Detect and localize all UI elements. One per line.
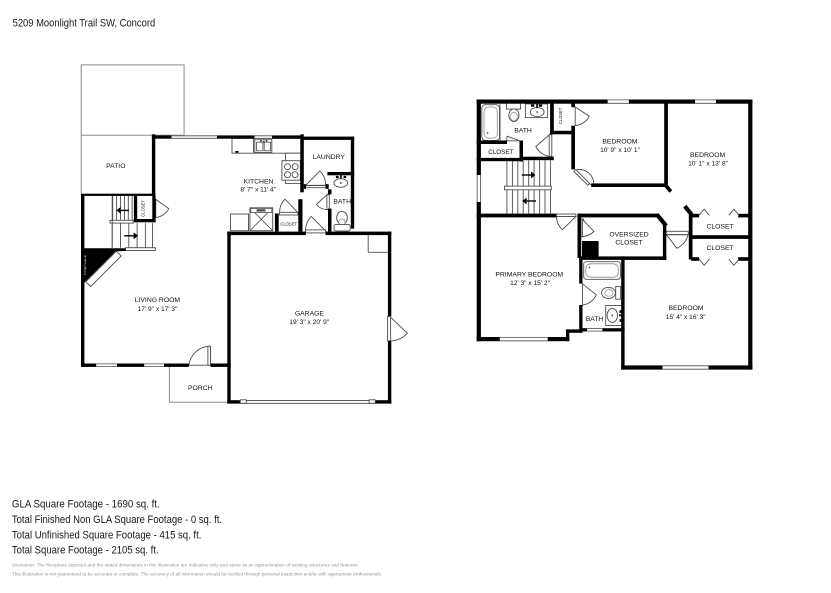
svg-text:17' 9" x 17' 3": 17' 9" x 17' 3" — [138, 306, 178, 313]
svg-text:Disclaimer: The floorplans dep: Disclaimer: The floorplans depicted and … — [12, 562, 359, 567]
svg-text:LIVING ROOM: LIVING ROOM — [135, 297, 181, 304]
svg-text:CLOSET: CLOSET — [488, 149, 513, 156]
svg-text:This illustration is not guara: This illustration is not guaranteed to b… — [12, 572, 382, 577]
svg-text:BEDROOM: BEDROOM — [668, 305, 703, 312]
svg-text:BATH: BATH — [514, 128, 532, 135]
svg-text:CLOSET: CLOSET — [280, 221, 297, 226]
svg-text:Total Unfinished Square Footag: Total Unfinished Square Footage - 415 sq… — [12, 529, 202, 541]
svg-text:BATH: BATH — [586, 316, 604, 323]
svg-text:BEDROOM: BEDROOM — [690, 152, 725, 159]
svg-text:5209 Moonlight Trail SW, Conco: 5209 Moonlight Trail SW, Concord — [13, 17, 156, 29]
svg-text:BATH: BATH — [333, 199, 351, 206]
svg-text:PORCH: PORCH — [188, 385, 213, 392]
svg-text:10' 1" x 13' 8": 10' 1" x 13' 8" — [688, 160, 728, 167]
svg-text:CLOSET: CLOSET — [558, 107, 563, 124]
svg-text:PRIMARY BEDROOM: PRIMARY BEDROOM — [495, 271, 563, 278]
svg-text:CLOSET: CLOSET — [141, 200, 146, 217]
svg-text:19' 3" x 20' 9": 19' 3" x 20' 9" — [289, 319, 329, 326]
svg-text:CLOSET: CLOSET — [615, 240, 642, 247]
svg-text:PATIO: PATIO — [106, 163, 125, 170]
svg-text:15' 4" x 16' 3": 15' 4" x 16' 3" — [666, 314, 706, 321]
svg-text:CLOSET: CLOSET — [706, 224, 733, 231]
svg-text:12' 3" x 15' 2": 12' 3" x 15' 2" — [510, 280, 550, 287]
svg-text:CLOSET: CLOSET — [706, 245, 733, 252]
svg-text:GLA Square Footage - 1690 sq.: GLA Square Footage - 1690 sq. ft. — [12, 499, 160, 511]
svg-text:BEDROOM: BEDROOM — [602, 139, 637, 146]
svg-text:Total Finished Non GLA Square: Total Finished Non GLA Square Footage - … — [12, 514, 222, 526]
svg-text:10' 9" x 10' 1": 10' 9" x 10' 1" — [600, 147, 640, 154]
svg-text:Total Square Footage - 2105 sq: Total Square Footage - 2105 sq. ft. — [12, 544, 159, 556]
svg-text:KITCHEN: KITCHEN — [244, 178, 274, 185]
svg-text:OVERSIZED: OVERSIZED — [609, 232, 648, 239]
svg-text:8' 7" x 11' 4": 8' 7" x 11' 4" — [240, 187, 276, 194]
svg-text:GARAGE: GARAGE — [295, 310, 325, 317]
svg-text:LAUNDRY: LAUNDRY — [313, 154, 346, 161]
